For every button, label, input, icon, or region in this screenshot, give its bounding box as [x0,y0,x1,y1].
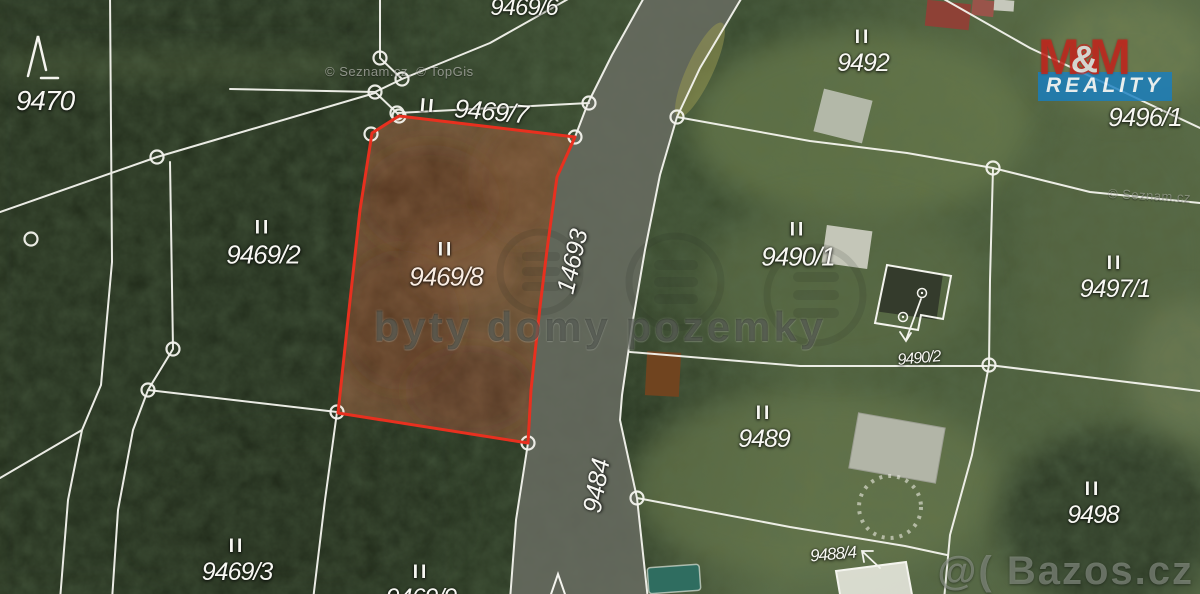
parcel-label-9469-8-highlighted: II 9469/8 [409,241,483,290]
land-use-marker: II [1107,254,1124,273]
parcel-label-9492: II 9492 [837,28,889,76]
bazos-watermark: @( Bazos.cz [937,549,1194,594]
aerial-cadastral-map[interactable]: 9470 9469/6 II 9469/7 II 9469/2 II 9469/… [0,0,1200,594]
parcel-number: 9496/1 [1108,104,1182,130]
land-use-marker: II [756,404,773,423]
land-use-marker: II [790,221,807,240]
parcel-number: 9470 [16,87,74,115]
map-attribution: © Seznam.cz, © TopGis [325,64,474,79]
logo-reality-banner: REALITY [1038,72,1172,101]
parcel-number: 9490/1 [761,244,835,270]
land-use-marker: II [419,96,437,116]
parcel-number: 9469/3 [202,560,272,585]
land-use-marker: II [229,537,246,556]
parcel-number: 9497/1 [1080,277,1150,302]
parcel-label-9497-1: II 9497/1 [1080,254,1150,302]
parcel-label-9469-6: 9469/6 [490,0,557,20]
parcel-number: 9469/8 [409,264,483,290]
parcel-number: 9492 [837,51,889,76]
parcel-label-9488-4: 9488/4 [809,544,856,565]
logo-ampersand: & [1071,44,1094,76]
land-use-marker: II [438,241,455,260]
parcel-label-9469-9: II 9469/9 [386,563,456,594]
parcel-label-9469-2: II 9469/2 [226,219,300,268]
parcel-number: 9489 [738,427,790,452]
logo-letter-m: M [1089,36,1127,79]
portal-watermark: byty domy pozemky [374,303,826,351]
parcel-label-9490-1: II 9490/1 [761,221,835,270]
land-use-marker: II [255,219,272,238]
parcel-label-9470: 9470 [16,87,74,115]
pool [647,564,701,594]
parcel-number: 9469/6 [490,0,557,20]
land-use-marker: II [413,563,430,582]
parcel-number: 9469/7 [453,95,529,127]
parcel-number: 9488/4 [809,544,856,565]
land-use-marker: II [1085,480,1102,499]
parcel-label-9496-1: 9496/1 [1108,104,1182,130]
parcel-number: 9469/9 [386,586,456,594]
land-use-marker: II [855,28,872,47]
parcel-label-9469-3: II 9469/3 [202,537,272,585]
parcel-number: 9469/2 [226,242,300,268]
parcel-label-9498: II 9498 [1067,480,1119,528]
parcel-number: 9498 [1067,503,1119,528]
parcel-label-9489: II 9489 [738,404,790,452]
mm-reality-logo: M & M REALITY [1038,36,1172,101]
